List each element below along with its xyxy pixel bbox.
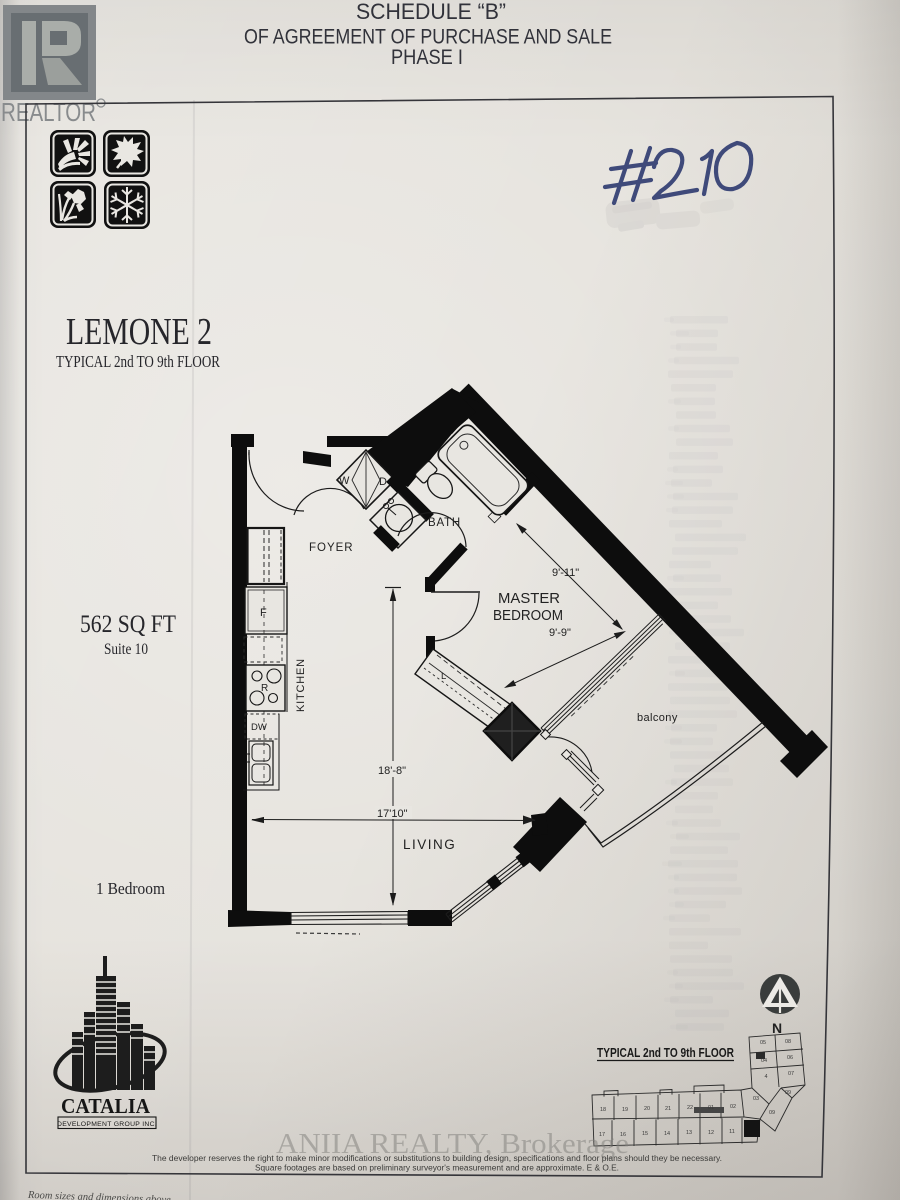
svg-text:Room sizes and dimensions abov: Room sizes and dimensions above — [27, 1190, 172, 1200]
svg-text:19: 19 — [622, 1107, 628, 1113]
svg-text:09: 09 — [769, 1110, 775, 1116]
svg-text:04: 04 — [761, 1058, 767, 1064]
svg-text:9'-11": 9'-11" — [552, 567, 579, 579]
svg-text:SCHEDULE “B”: SCHEDULE “B” — [356, 0, 506, 24]
svg-text:F: F — [260, 607, 267, 619]
svg-text:DW: DW — [251, 722, 267, 733]
svg-text:L: L — [441, 671, 446, 682]
svg-text:LEMONE 2: LEMONE 2 — [66, 311, 212, 353]
svg-text:OF AGREEMENT OF PURCHASE AND S: OF AGREEMENT OF PURCHASE AND SALE — [244, 25, 612, 49]
svg-text:06: 06 — [787, 1055, 793, 1061]
svg-text:MASTER: MASTER — [498, 590, 560, 607]
svg-text:01: 01 — [708, 1105, 714, 1111]
svg-text:17'10": 17'10" — [377, 808, 408, 820]
svg-text:15: 15 — [642, 1131, 648, 1137]
svg-text:21: 21 — [665, 1106, 671, 1112]
svg-text:22: 22 — [687, 1105, 693, 1111]
svg-text:9'-9": 9'-9" — [549, 627, 571, 639]
svg-text:REALTOR: REALTOR — [1, 97, 96, 127]
svg-text:03: 03 — [753, 1096, 759, 1102]
svg-text:02: 02 — [730, 1104, 736, 1110]
svg-text:Suite 10: Suite 10 — [104, 641, 148, 658]
svg-text:TYPICAL 2nd TO 9th FLOOR: TYPICAL 2nd TO 9th FLOOR — [597, 1046, 734, 1060]
svg-text:08: 08 — [785, 1039, 791, 1045]
svg-text:09: 09 — [785, 1090, 791, 1096]
svg-text:18'-8": 18'-8" — [378, 765, 406, 777]
svg-text:CATALIA: CATALIA — [61, 1094, 151, 1118]
svg-text:LIVING: LIVING — [403, 837, 456, 852]
svg-text:05: 05 — [760, 1040, 766, 1046]
svg-text:FOYER: FOYER — [309, 542, 354, 554]
svg-text:KITCHEN: KITCHEN — [295, 658, 307, 712]
svg-text:BEDROOM: BEDROOM — [493, 607, 563, 624]
svg-text:07: 07 — [788, 1071, 794, 1077]
svg-text:W: W — [339, 475, 350, 487]
svg-text:4: 4 — [764, 1074, 767, 1080]
svg-text:PHASE I: PHASE I — [391, 46, 463, 69]
svg-text:BATH: BATH — [428, 517, 461, 529]
svg-text:The developer reserves the rig: The developer reserves the right to make… — [152, 1154, 722, 1163]
svg-text:DEVELOPMENT GROUP INC.: DEVELOPMENT GROUP INC. — [57, 1121, 157, 1128]
svg-text:D: D — [379, 476, 387, 488]
svg-text:N: N — [772, 1020, 782, 1036]
svg-text:18: 18 — [600, 1107, 606, 1113]
svg-text:11: 11 — [729, 1129, 735, 1135]
svg-text:12: 12 — [708, 1130, 714, 1136]
svg-text:562 SQ FT: 562 SQ FT — [80, 611, 176, 638]
svg-text:Square footages are based on p: Square footages are based on preliminary… — [255, 1164, 619, 1173]
svg-text:1 Bedroom: 1 Bedroom — [96, 879, 165, 898]
svg-text:20: 20 — [644, 1106, 650, 1112]
svg-text:balcony: balcony — [637, 712, 678, 724]
svg-text:TYPICAL 2nd TO 9th FLOOR: TYPICAL 2nd TO 9th FLOOR — [56, 352, 221, 371]
svg-text:14: 14 — [664, 1131, 670, 1137]
svg-text:R: R — [261, 683, 268, 694]
svg-text:13: 13 — [686, 1130, 692, 1136]
